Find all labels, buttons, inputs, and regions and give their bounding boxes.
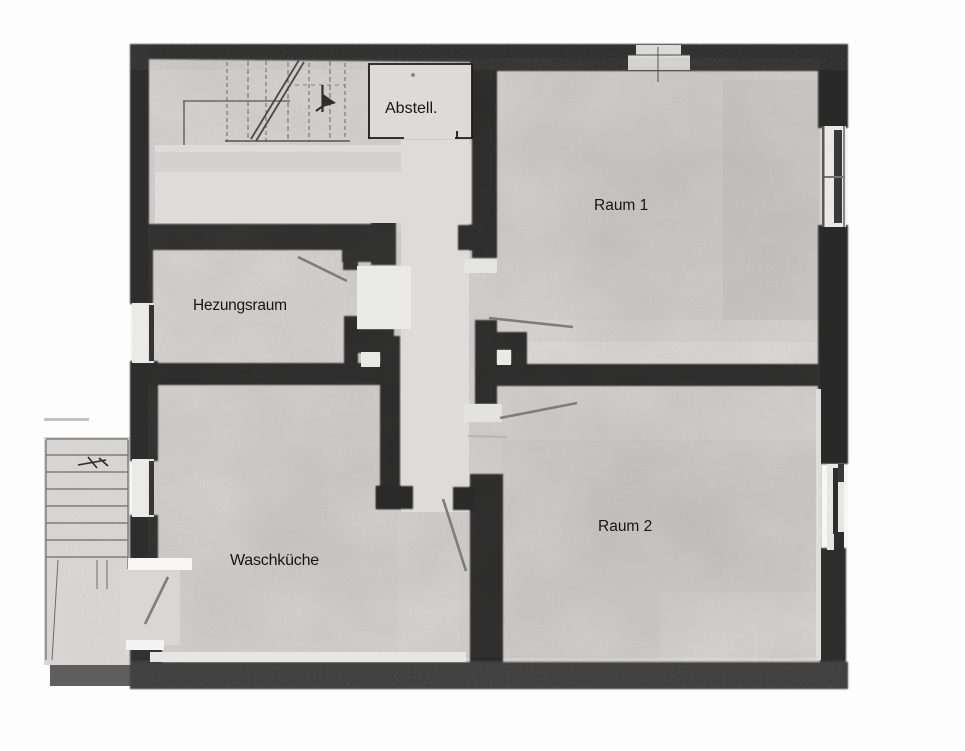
svg-text:Hezungsraum: Hezungsraum bbox=[193, 297, 287, 314]
svg-text:Waschküche: Waschküche bbox=[230, 552, 319, 569]
svg-text:Abstell.: Abstell. bbox=[385, 100, 437, 117]
svg-text:Raum 2: Raum 2 bbox=[598, 518, 652, 535]
svg-text:Raum 1: Raum 1 bbox=[594, 197, 648, 214]
